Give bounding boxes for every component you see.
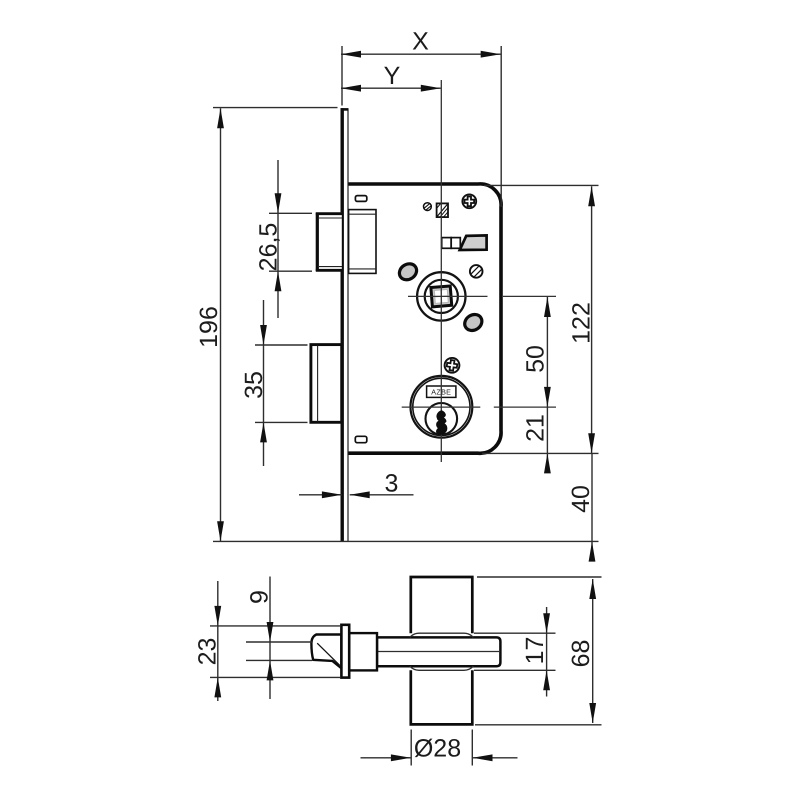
svg-text:17: 17 bbox=[521, 637, 549, 665]
svg-text:9: 9 bbox=[246, 590, 274, 604]
svg-text:35: 35 bbox=[240, 371, 268, 399]
svg-text:X: X bbox=[412, 27, 429, 55]
svg-text:3: 3 bbox=[385, 470, 399, 498]
svg-text:Ø28: Ø28 bbox=[414, 735, 461, 763]
svg-text:196: 196 bbox=[195, 306, 223, 348]
svg-text:68: 68 bbox=[567, 640, 595, 668]
svg-text:50: 50 bbox=[522, 345, 550, 373]
svg-text:23: 23 bbox=[194, 638, 222, 666]
svg-text:40: 40 bbox=[567, 485, 595, 513]
svg-text:21: 21 bbox=[522, 414, 550, 442]
svg-text:Y: Y bbox=[384, 62, 401, 90]
svg-text:122: 122 bbox=[568, 302, 596, 344]
svg-text:26,5: 26,5 bbox=[255, 223, 283, 272]
